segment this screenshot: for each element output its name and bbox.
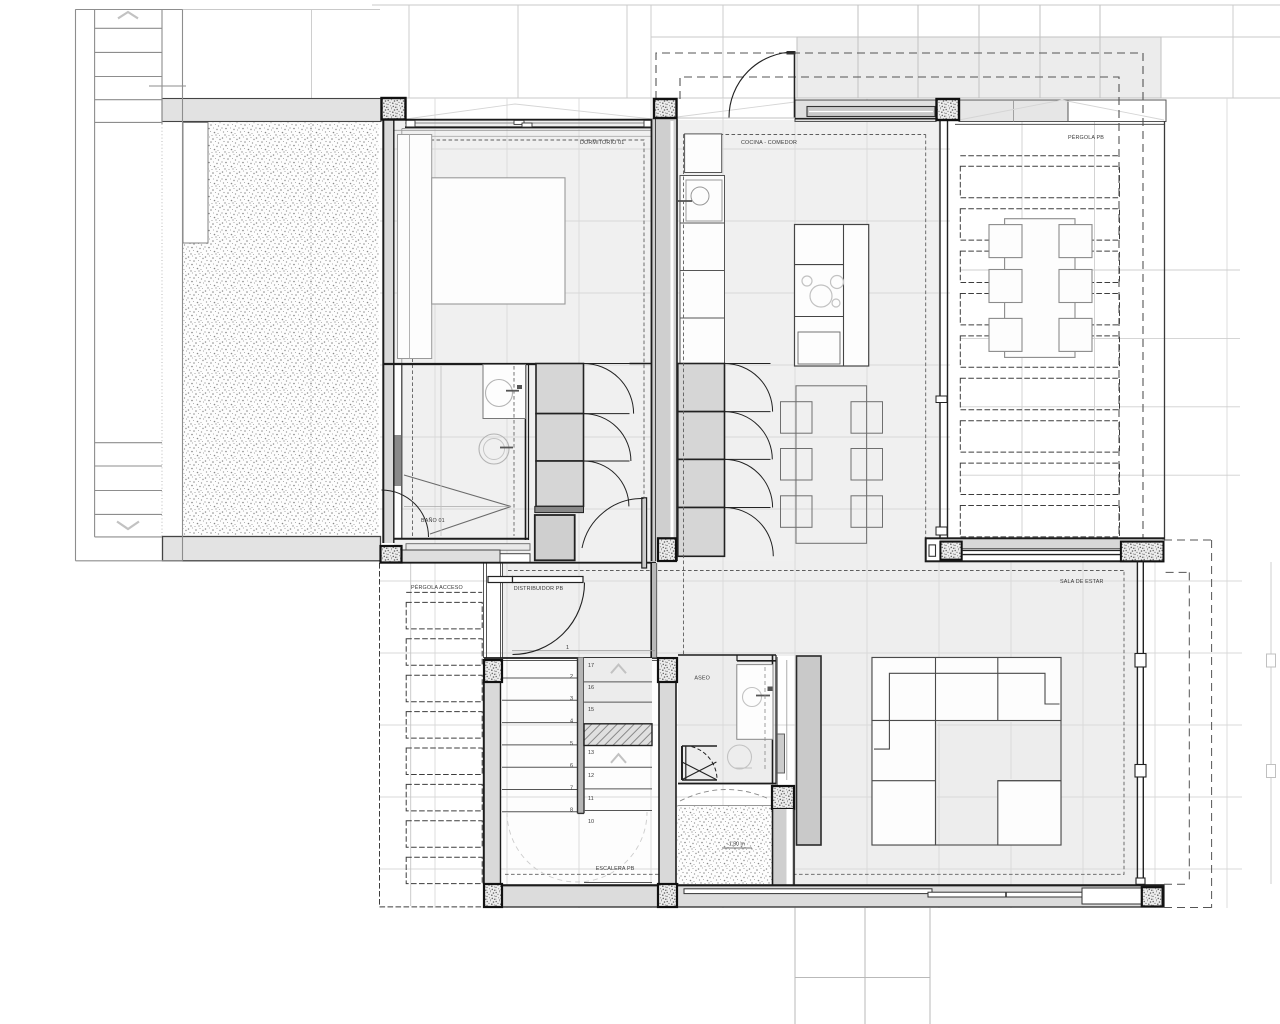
svg-text:16: 16 [588, 685, 594, 691]
svg-text:12: 12 [588, 773, 594, 779]
svg-text:7: 7 [570, 786, 573, 792]
svg-text:ASEO: ASEO [694, 676, 710, 682]
svg-text:COCINA - COMEDOR: COCINA - COMEDOR [741, 140, 797, 146]
svg-text:15: 15 [588, 707, 594, 713]
svg-text:PÉRGOLA PB: PÉRGOLA PB [1068, 134, 1104, 141]
svg-text:DISTRIBUIDOR PB: DISTRIBUIDOR PB [514, 586, 564, 592]
svg-text:4: 4 [570, 719, 573, 725]
svg-text:13: 13 [588, 750, 594, 756]
svg-text:DORMITORIO 01: DORMITORIO 01 [580, 140, 624, 146]
svg-text:PÉRGOLA ACCESO: PÉRGOLA ACCESO [411, 584, 463, 591]
svg-text:-1,50 m: -1,50 m [727, 842, 745, 848]
svg-text:ESCALERA PB: ESCALERA PB [596, 866, 635, 872]
svg-text:10: 10 [588, 819, 594, 825]
svg-text:1: 1 [566, 645, 569, 651]
svg-text:8: 8 [570, 808, 573, 814]
svg-text:BAÑO 01: BAÑO 01 [421, 517, 445, 524]
svg-text:17: 17 [588, 663, 594, 669]
svg-text:3: 3 [570, 696, 573, 702]
svg-text:SALA DE ESTAR: SALA DE ESTAR [1060, 579, 1104, 585]
svg-text:6: 6 [570, 763, 573, 769]
svg-text:5: 5 [570, 741, 573, 747]
svg-text:2: 2 [570, 674, 573, 680]
svg-text:11: 11 [588, 796, 594, 802]
